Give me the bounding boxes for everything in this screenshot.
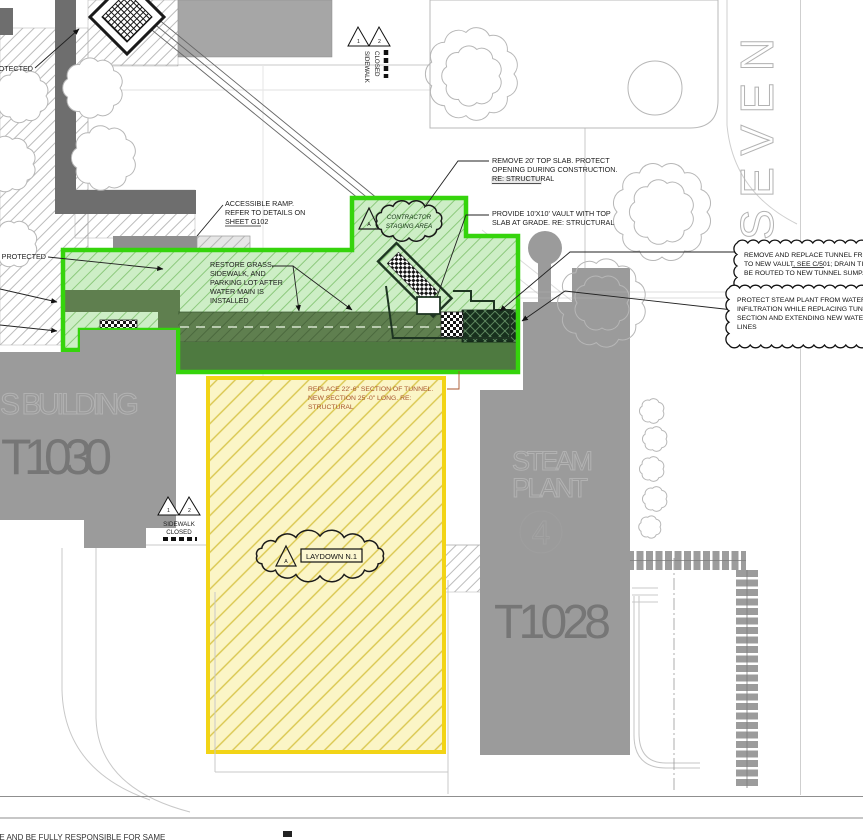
- layd own-zone-yellow: [208, 378, 444, 752]
- svg-text:INFILTRATION WHILE REPLACING T: INFILTRATION WHILE REPLACING TUNNEL: [737, 306, 863, 313]
- sidewalk-closed-left: SIDEWALK: [163, 521, 196, 528]
- svg-text:TO NEW VAULT, SEE C/501; DRAIN: TO NEW VAULT, SEE C/501; DRAIN TILE SHA: [744, 261, 863, 268]
- note-tunnel-vault: REMOVE AND REPLACE TUNNEL FROM STE: [744, 252, 863, 259]
- label-contractor-staging: CONTRACTOR: [387, 214, 432, 221]
- svg-text:SHEET G102: SHEET G102: [225, 217, 268, 226]
- svg-text:REFER TO DETAILS ON: REFER TO DETAILS ON: [225, 208, 305, 217]
- street-name: SEVEN: [731, 25, 783, 240]
- bush-icon: [642, 487, 666, 512]
- svg-text:LINES: LINES: [737, 324, 757, 331]
- callout-accessible-ramp: ACCESSIBLE RAMP.: [225, 199, 294, 208]
- svg-text:2: 2: [378, 39, 381, 45]
- label-laydown: LAYDOWN N.1: [306, 552, 357, 561]
- callout-provide-vault: PROVIDE 10'X10' VAULT WITH TOP: [492, 209, 611, 218]
- steam-plant-name-1: STEAM: [512, 446, 597, 476]
- utility-path-left: [63, 290, 180, 312]
- city-block-top-right: [430, 0, 718, 128]
- svg-text:STAGING AREA: STAGING AREA: [386, 223, 433, 230]
- svg-text:INSTALLED: INSTALLED: [210, 296, 249, 305]
- building-name-t1030: S BUILDING: [0, 388, 142, 421]
- callout-replace-tunnel: REPLACE 22'-6" SECTION OF TUNNEL.: [308, 386, 433, 393]
- label-protected-upper: PROTECTED: [0, 64, 33, 73]
- bush-icon: [639, 399, 663, 424]
- footer-partial-note: EE AND BE FULLY RESPONSIBLE FOR SAME: [0, 833, 165, 840]
- site-plan-sheet: SEVEN S BUILDING T1030 STEAM PLANT 4 T10…: [0, 0, 863, 840]
- svg-text:A: A: [367, 222, 371, 228]
- steam-plant-unit: 4: [532, 514, 550, 551]
- svg-text:2: 2: [188, 508, 191, 514]
- svg-text:PARKING LOT AFTER: PARKING LOT AFTER: [210, 278, 283, 287]
- site-plan-drawing: SEVEN S BUILDING T1030 STEAM PLANT 4 T10…: [0, 0, 863, 840]
- pole-lollipop: [528, 231, 562, 265]
- svg-text:OPENING DURING CONSTRUCTION.: OPENING DURING CONSTRUCTION.: [492, 165, 617, 174]
- svg-text:A: A: [284, 559, 288, 565]
- svg-text:CLOSED: CLOSED: [373, 51, 380, 77]
- building-number-t1028: T1028: [494, 596, 612, 649]
- bush-icon: [642, 427, 666, 452]
- sidewalk-closed-top: SIDEWALK: [363, 51, 370, 84]
- callout-restore-surfaces: RESTORE GRASS,: [210, 260, 274, 269]
- svg-text:RE: STRUCTURAL: RE: STRUCTURAL: [492, 174, 554, 183]
- svg-text:SIDEWALK, AND: SIDEWALK, AND: [210, 269, 266, 278]
- building-number-t1030: T1030: [1, 429, 113, 485]
- bush-icon: [71, 126, 135, 191]
- bush-icon: [63, 58, 122, 118]
- svg-text:STRUCTURAL: STRUCTURAL: [308, 404, 354, 411]
- steam-plant-name-2: PLANT: [512, 473, 592, 503]
- svg-text:1: 1: [167, 508, 170, 514]
- building-footprint-top: [178, 0, 332, 57]
- svg-text:SLAB AT GRADE. RE: STRUCTURAL: SLAB AT GRADE. RE: STRUCTURAL: [492, 218, 614, 227]
- svg-text:SECTION AND EXTENDING NEW WATE: SECTION AND EXTENDING NEW WATER: [737, 315, 863, 322]
- svg-text:NEW SECTION 25'-0" LONG. RE:: NEW SECTION 25'-0" LONG. RE:: [308, 395, 412, 402]
- svg-text:BE ROUTED TO NEW TUNNEL SUMP.: BE ROUTED TO NEW TUNNEL SUMP.: [744, 270, 863, 277]
- svg-text:WATER MAIN IS: WATER MAIN IS: [210, 287, 264, 296]
- new-vault-box: [417, 297, 440, 314]
- note-protect-steam: PROTECT STEAM PLANT FROM WATER: [737, 297, 863, 304]
- bush-icon: [639, 457, 663, 482]
- callout-remove-top-slab: REMOVE 20' TOP SLAB. PROTECT: [492, 156, 610, 165]
- svg-text:1: 1: [357, 39, 360, 45]
- label-protected-lower: PROTECTED: [2, 252, 46, 261]
- tunnel-bottom-strip: [178, 342, 517, 372]
- bush-icon: [639, 516, 661, 538]
- svg-text:CLOSED: CLOSED: [166, 529, 192, 536]
